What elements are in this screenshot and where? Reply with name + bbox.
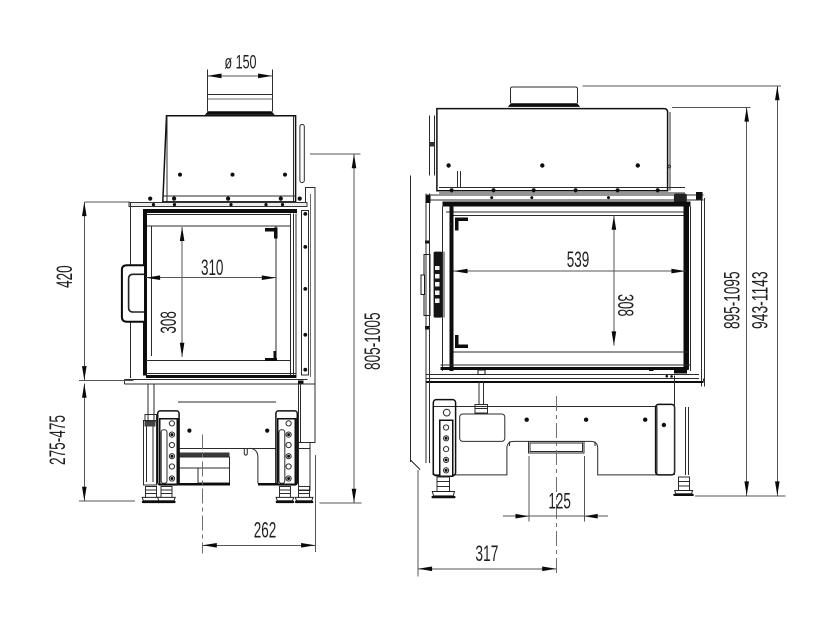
svg-text:308: 308	[613, 294, 638, 317]
svg-text:420: 420	[52, 265, 77, 288]
svg-text:943-1143: 943-1143	[748, 271, 773, 329]
svg-text:895-1095: 895-1095	[720, 271, 745, 329]
svg-text:262: 262	[254, 518, 277, 543]
svg-text:275-475: 275-475	[45, 415, 70, 465]
svg-text:317: 317	[475, 541, 498, 566]
svg-text:805-1005: 805-1005	[360, 312, 385, 370]
svg-text:125: 125	[548, 489, 571, 514]
svg-text:539: 539	[567, 247, 590, 272]
svg-text:310: 310	[201, 255, 224, 280]
svg-text:308: 308	[156, 311, 181, 334]
svg-text:ø 150: ø 150	[225, 53, 257, 74]
